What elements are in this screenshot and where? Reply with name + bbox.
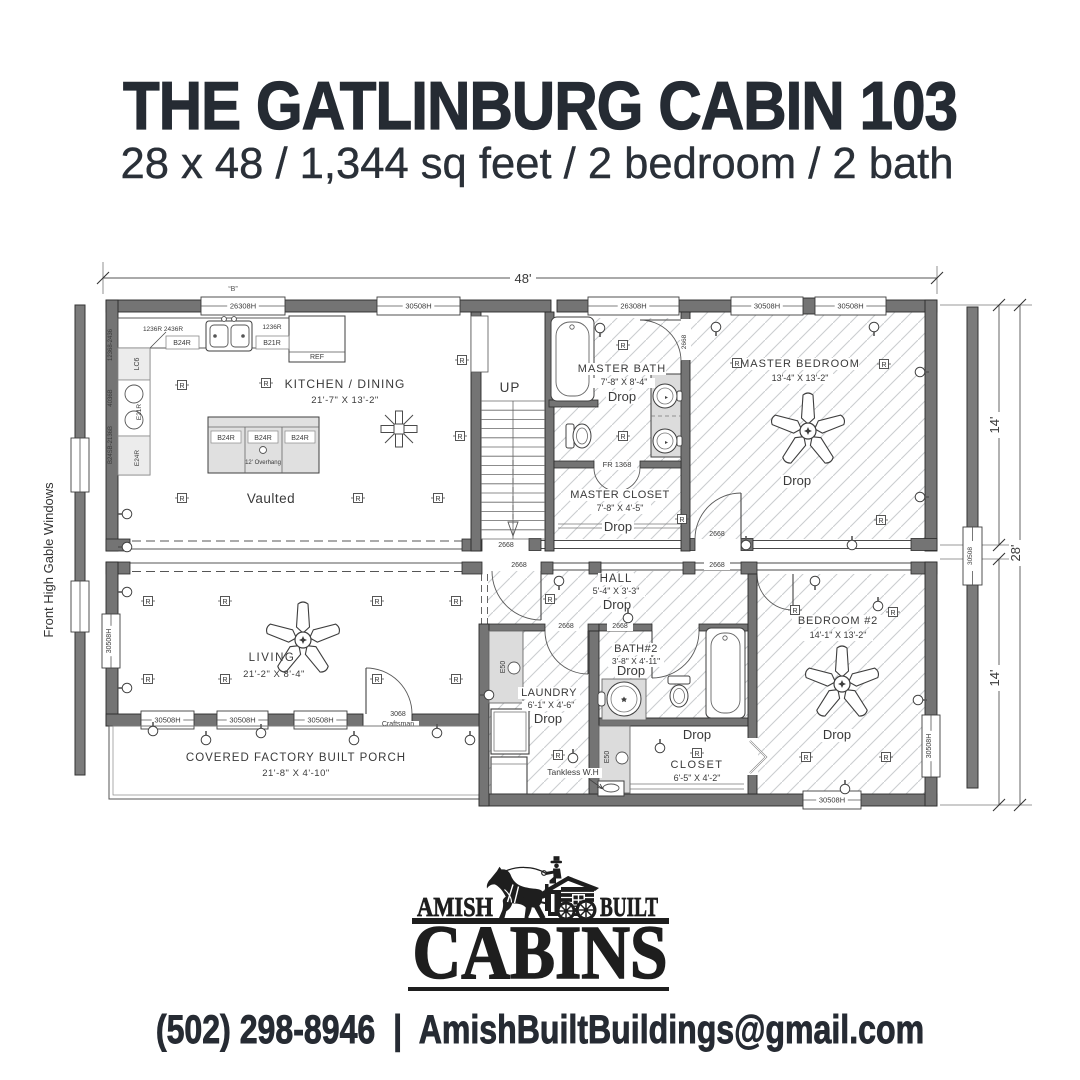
svg-text:CABINS: CABINS	[413, 911, 668, 995]
